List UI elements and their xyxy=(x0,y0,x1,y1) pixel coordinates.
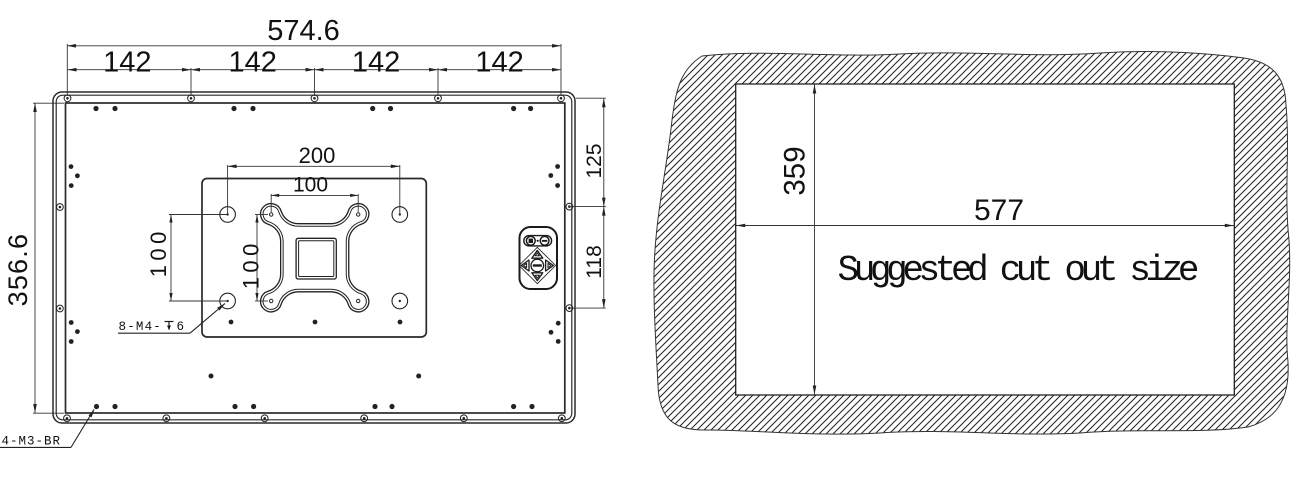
svg-text:577: 577 xyxy=(974,194,1024,227)
svg-text:142: 142 xyxy=(352,47,400,79)
svg-text:118: 118 xyxy=(583,245,606,278)
svg-text:142: 142 xyxy=(475,47,523,79)
svg-text:142: 142 xyxy=(103,47,151,79)
svg-text:24-M3-BR: 24-M3-BR xyxy=(0,435,61,449)
svg-text:Suggested cut out size: Suggested cut out size xyxy=(838,250,1200,291)
svg-text:8-M4-: 8-M4- xyxy=(119,320,163,334)
svg-text:142: 142 xyxy=(229,47,277,79)
svg-text:6: 6 xyxy=(177,320,185,334)
svg-text:574.6: 574.6 xyxy=(267,15,340,47)
svg-text:100: 100 xyxy=(238,239,263,289)
svg-text:125: 125 xyxy=(583,143,606,178)
svg-text:100: 100 xyxy=(293,174,328,197)
svg-text:359: 359 xyxy=(778,146,811,195)
svg-text:356.6: 356.6 xyxy=(3,233,33,307)
svg-text:200: 200 xyxy=(299,143,336,168)
svg-text:100: 100 xyxy=(146,227,171,277)
